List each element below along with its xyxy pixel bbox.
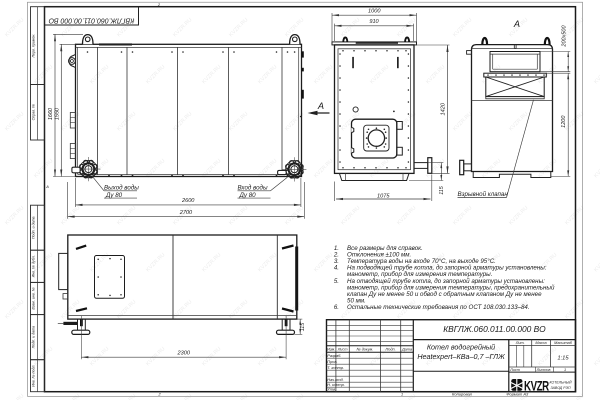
svg-text:4.: 4.: [334, 265, 339, 272]
svg-text:КВГЛЖ.060.011.00.000 ВО: КВГЛЖ.060.011.00.000 ВО: [48, 16, 134, 23]
svg-text:Инв. № подл.: Инв. № подл.: [31, 365, 35, 387]
svg-text:Пров.: Пров.: [327, 359, 337, 364]
svg-text:Взрывной клапан: Взрывной клапан: [458, 191, 509, 198]
svg-text:ЗАВОД РЭП: ЗАВОД РЭП: [550, 386, 571, 390]
svg-text:Heatexpert–КВа–0,7 –ГЛЖ: Heatexpert–КВа–0,7 –ГЛЖ: [417, 352, 505, 361]
svg-text:Изм.: Изм.: [327, 348, 335, 352]
svg-text:Подп. и дата: Подп. и дата: [31, 326, 35, 349]
svg-text:910: 910: [369, 19, 379, 25]
svg-text:Взам. инв. №: Взам. инв. №: [31, 287, 35, 309]
svg-text:115: 115: [439, 185, 445, 195]
svg-text:Лит.: Лит.: [515, 341, 525, 345]
svg-text:2700: 2700: [179, 210, 193, 216]
svg-text:1420: 1420: [440, 102, 446, 115]
svg-text:Масса: Масса: [535, 341, 546, 345]
svg-text:2600: 2600: [181, 198, 195, 204]
svg-text:КВГЛЖ.060.011.00.000 ВО: КВГЛЖ.060.011.00.000 ВО: [443, 324, 546, 334]
svg-text:Утв.: Утв.: [327, 387, 336, 392]
svg-text:Подп. и дата: Подп. и дата: [31, 216, 35, 239]
svg-text:2300: 2300: [177, 351, 191, 357]
svg-text:Котел водогрейный: Котел водогрейный: [427, 342, 495, 351]
svg-text:Масштаб: Масштаб: [554, 341, 573, 345]
svg-text:А: А: [513, 19, 520, 29]
svg-text:Справ. №: Справ. №: [31, 104, 35, 120]
svg-text:КОТЕЛЬНЫЙ: КОТЕЛЬНЫЙ: [549, 380, 572, 384]
svg-text:Т. контр.: Т. контр.: [327, 365, 344, 370]
svg-text:1075: 1075: [377, 193, 390, 199]
svg-text:№ докум.: № докум.: [357, 348, 374, 352]
svg-text:1: 1: [401, 393, 403, 397]
svg-text:Лист: Лист: [337, 348, 348, 352]
svg-text:1: 1: [564, 368, 566, 372]
svg-text:5.: 5.: [334, 278, 339, 285]
svg-text:Подп.: Подп.: [386, 348, 396, 352]
svg-text:1660: 1660: [48, 107, 54, 120]
svg-text:Остальные технические требован: Остальные технические требования по ОСТ …: [347, 304, 530, 311]
svg-text:1550: 1550: [55, 107, 61, 120]
svg-text:Разраб.: Разраб.: [327, 353, 341, 358]
svg-text:Лист: Лист: [509, 368, 520, 372]
svg-text:Листов: Листов: [536, 368, 551, 372]
svg-text:1200: 1200: [561, 115, 567, 128]
svg-text:Копировал: Копировал: [452, 392, 473, 397]
svg-text:А: А: [45, 185, 49, 189]
svg-text:Перв. примен.: Перв. примен.: [31, 34, 35, 58]
svg-text:200х500: 200х500: [561, 25, 567, 48]
svg-text:Инв. № дубл.: Инв. № дубл.: [31, 255, 35, 277]
svg-text:Дата: Дата: [401, 348, 412, 352]
svg-text:Формат А3: Формат А3: [506, 392, 529, 397]
svg-text:1000: 1000: [368, 9, 381, 15]
svg-text:1:15: 1:15: [557, 355, 569, 361]
svg-text:А: А: [317, 101, 324, 111]
svg-text:115: 115: [300, 322, 306, 332]
svg-text:6.: 6.: [334, 304, 339, 311]
svg-text:клапан Ду не менее 50 и обвод: клапан Ду не менее 50 и обвод с обратным…: [347, 291, 542, 298]
